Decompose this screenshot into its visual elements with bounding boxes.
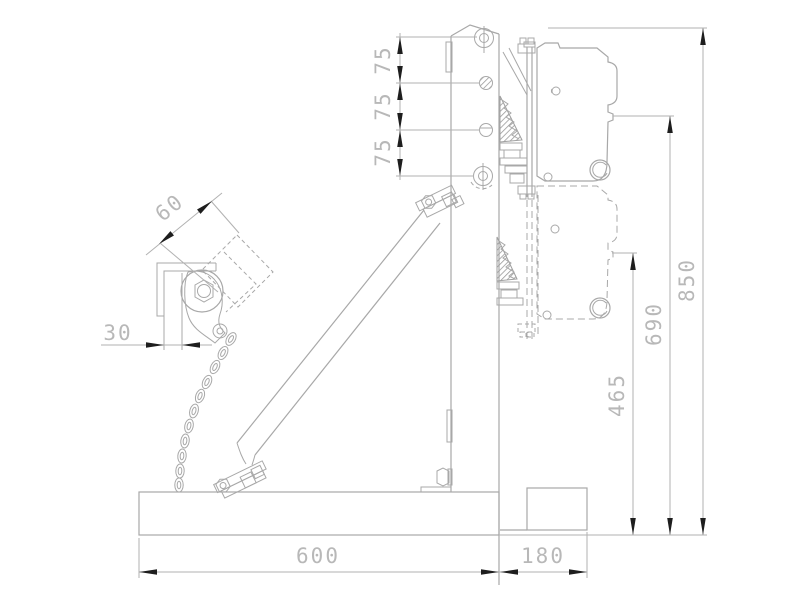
base-plate — [139, 492, 499, 535]
dim-75-chain: 75 75 75 — [371, 33, 480, 180]
diagonal-arm — [237, 210, 440, 465]
dim-label-850: 850 — [675, 258, 699, 302]
arm-top-clevis — [415, 182, 464, 222]
dim-600: 600 — [139, 538, 499, 578]
column-holes — [471, 26, 494, 190]
dim-label-60: 60 — [151, 189, 189, 226]
hole-top — [475, 26, 494, 53]
snap-ring-phantom — [590, 298, 610, 318]
gear-sector-phantom — [497, 237, 517, 281]
dim-label-600: 600 — [296, 544, 340, 568]
dim-label-75b: 75 — [371, 91, 395, 120]
dim-30: 30 — [101, 321, 212, 348]
dim-60: 60 — [146, 189, 239, 292]
dim-label-30: 30 — [103, 321, 132, 345]
dim-label-690: 690 — [642, 302, 666, 346]
dim-label-465: 465 — [605, 373, 629, 417]
hole-plain — [480, 124, 493, 137]
hole-hatched — [480, 77, 493, 90]
column — [421, 25, 499, 585]
dim-label-75a: 75 — [371, 45, 395, 74]
dim-850: 850 — [548, 28, 707, 535]
dim-465: 465 — [605, 253, 637, 535]
dim-690: 690 — [613, 116, 674, 535]
arm-foot-bracket — [213, 459, 270, 500]
drawing-canvas: 75 75 75 60 30 600 180 — [0, 0, 800, 600]
gear-sector — [500, 96, 522, 142]
dim-label-75c: 75 — [371, 137, 395, 166]
dim-180: 180 — [499, 532, 587, 578]
dim-label-180: 180 — [521, 544, 565, 568]
snap-ring-solid — [590, 160, 610, 180]
column-side-bolt — [437, 468, 452, 486]
hole-bottom — [471, 163, 493, 190]
jack-body-solid — [500, 38, 617, 199]
technical-drawing: 75 75 75 60 30 600 180 — [0, 0, 800, 600]
chain — [175, 331, 238, 492]
jack-body-phantom — [497, 186, 617, 340]
foot-block — [500, 488, 587, 530]
